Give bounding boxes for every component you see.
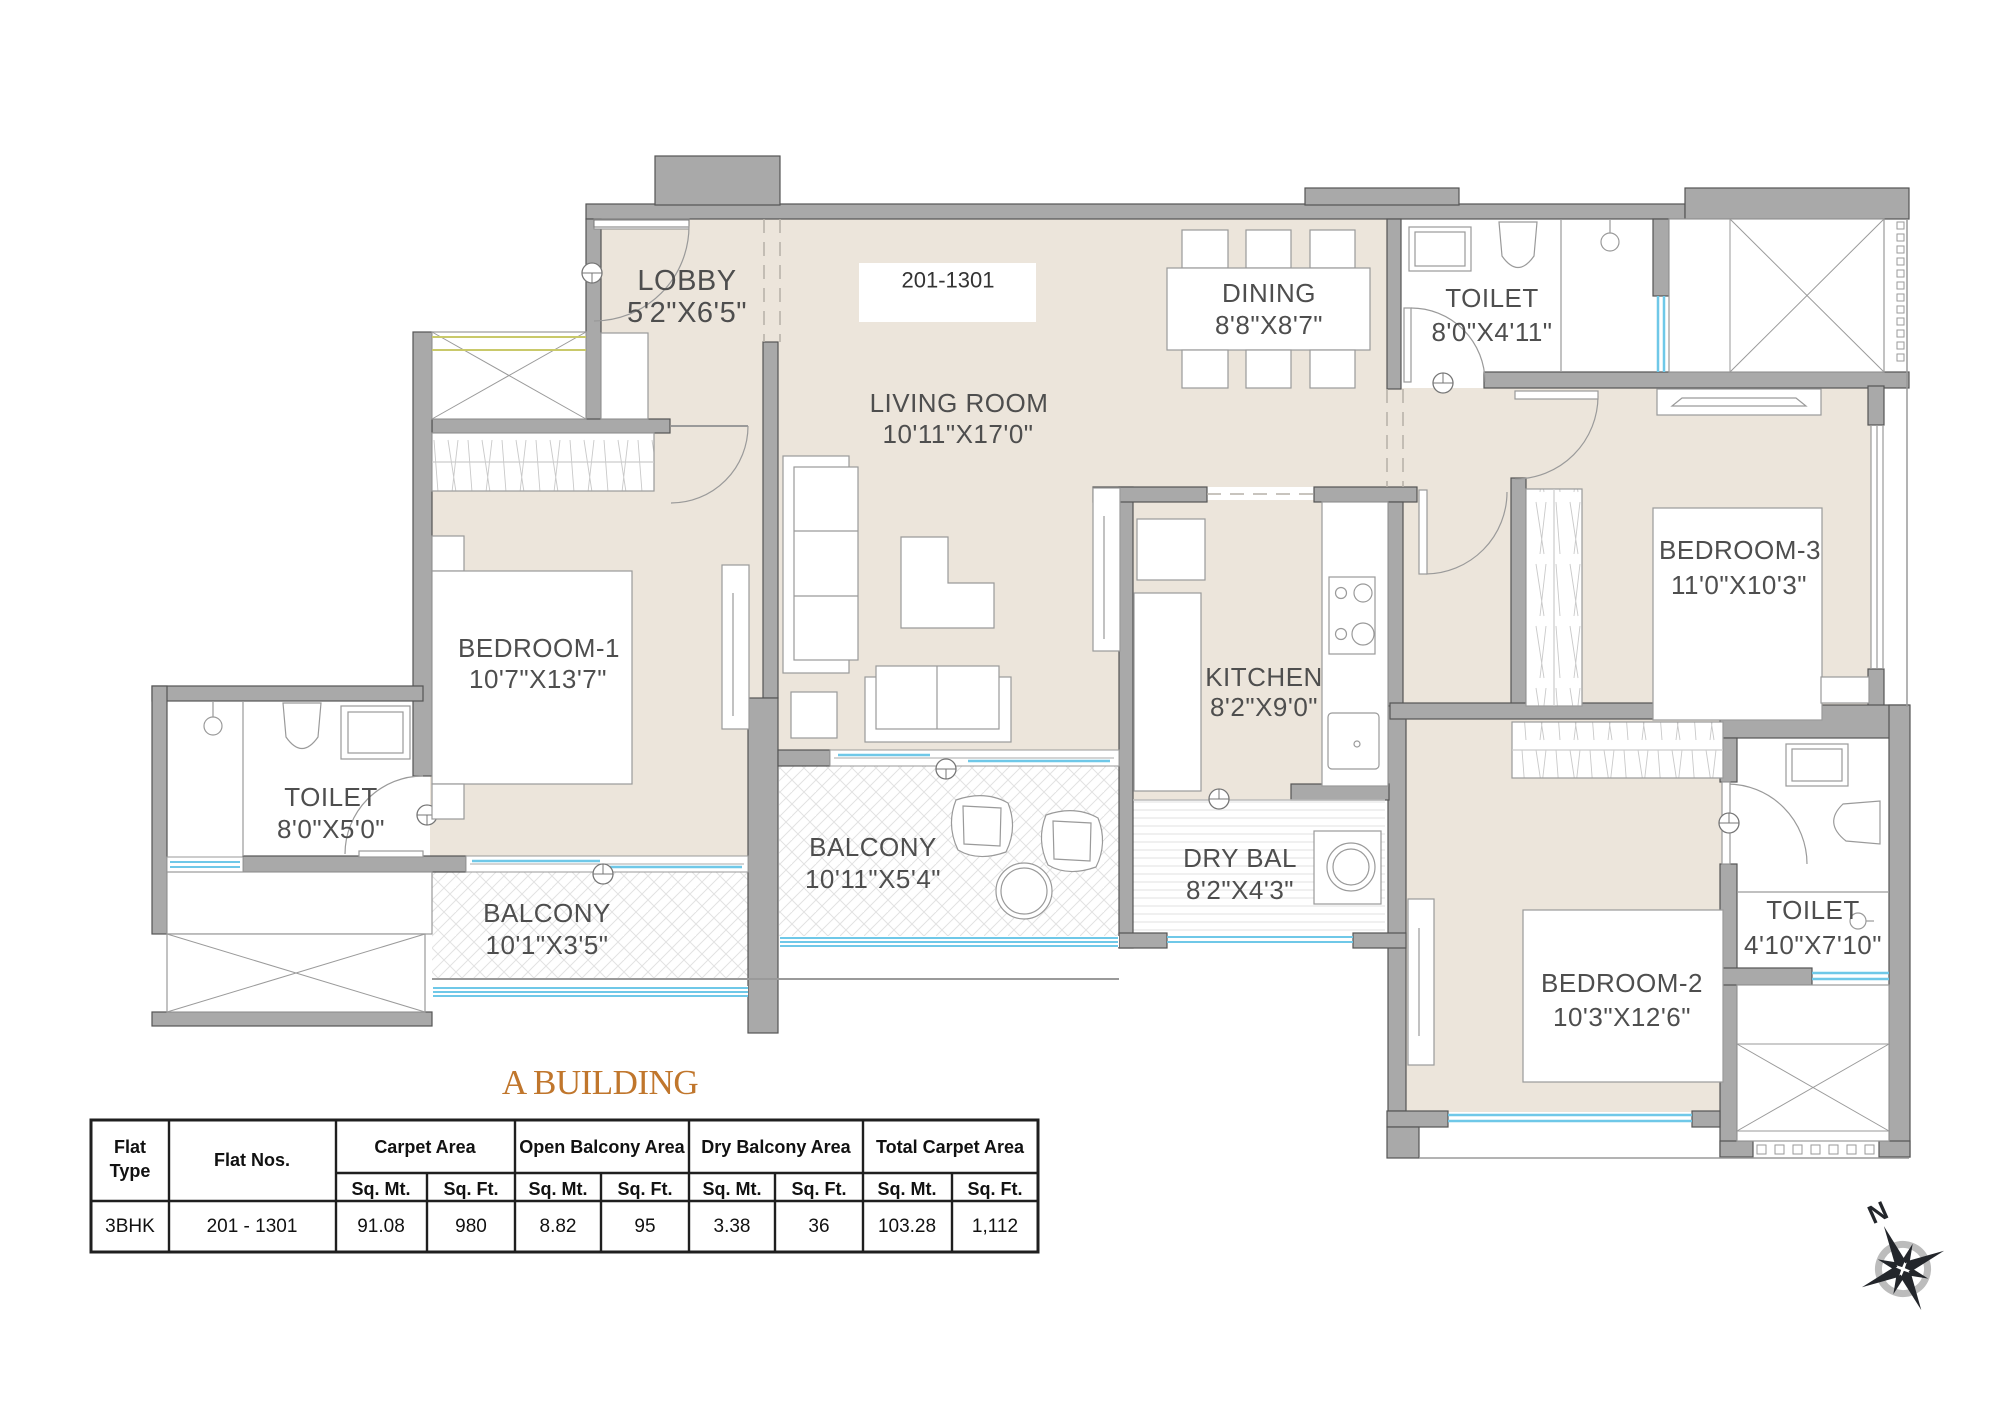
svg-text:BEDROOM-3: BEDROOM-3 bbox=[1659, 535, 1821, 565]
svg-text:TOILET: TOILET bbox=[1445, 283, 1539, 313]
svg-text:Flat: Flat bbox=[114, 1137, 146, 1157]
svg-text:8'0"X5'0": 8'0"X5'0" bbox=[277, 814, 385, 844]
svg-text:Sq. Mt.: Sq. Mt. bbox=[352, 1179, 411, 1199]
svg-text:8.82: 8.82 bbox=[540, 1216, 577, 1237]
svg-text:BALCONY: BALCONY bbox=[483, 898, 611, 928]
svg-text:Sq. Mt.: Sq. Mt. bbox=[878, 1179, 937, 1199]
svg-text:Flat Nos.: Flat Nos. bbox=[214, 1150, 290, 1170]
svg-text:3BHK: 3BHK bbox=[105, 1216, 155, 1237]
svg-text:DRY BAL: DRY BAL bbox=[1183, 843, 1297, 873]
svg-text:Sq. Ft.: Sq. Ft. bbox=[444, 1179, 499, 1199]
svg-text:BEDROOM-2: BEDROOM-2 bbox=[1541, 968, 1703, 998]
svg-text:BEDROOM-1: BEDROOM-1 bbox=[458, 633, 620, 663]
svg-text:KITCHEN: KITCHEN bbox=[1205, 662, 1323, 692]
svg-text:Sq. Mt.: Sq. Mt. bbox=[703, 1179, 762, 1199]
svg-text:8'2"X9'0": 8'2"X9'0" bbox=[1210, 692, 1318, 722]
svg-text:1,112: 1,112 bbox=[972, 1216, 1018, 1237]
svg-text:TOILET: TOILET bbox=[1766, 895, 1860, 925]
svg-text:Dry Balcony Area: Dry Balcony Area bbox=[701, 1137, 851, 1157]
svg-text:BALCONY: BALCONY bbox=[809, 832, 937, 862]
svg-text:A BUILDING: A BUILDING bbox=[502, 1063, 698, 1102]
svg-text:Sq. Ft.: Sq. Ft. bbox=[792, 1179, 847, 1199]
svg-text:10'11"X5'4": 10'11"X5'4" bbox=[805, 864, 941, 894]
svg-text:Open Balcony Area: Open Balcony Area bbox=[519, 1137, 685, 1157]
svg-text:DINING: DINING bbox=[1222, 278, 1316, 308]
svg-text:Sq. Ft.: Sq. Ft. bbox=[618, 1179, 673, 1199]
svg-text:3.38: 3.38 bbox=[714, 1216, 751, 1237]
svg-text:Total Carpet Area: Total Carpet Area bbox=[876, 1137, 1025, 1157]
svg-text:980: 980 bbox=[455, 1216, 487, 1237]
svg-text:10'3"X12'6": 10'3"X12'6" bbox=[1553, 1002, 1691, 1032]
svg-text:103.28: 103.28 bbox=[878, 1216, 936, 1237]
svg-text:201 - 1301: 201 - 1301 bbox=[207, 1216, 298, 1237]
svg-text:5'2"X6'5": 5'2"X6'5" bbox=[627, 297, 747, 329]
svg-text:Sq. Mt.: Sq. Mt. bbox=[529, 1179, 588, 1199]
svg-text:LOBBY: LOBBY bbox=[637, 265, 736, 297]
svg-text:10'11"X17'0": 10'11"X17'0" bbox=[882, 419, 1033, 449]
svg-text:TOILET: TOILET bbox=[284, 782, 378, 812]
svg-text:36: 36 bbox=[808, 1216, 829, 1237]
svg-text:8'0"X4'11": 8'0"X4'11" bbox=[1431, 317, 1552, 347]
svg-text:Sq. Ft.: Sq. Ft. bbox=[968, 1179, 1023, 1199]
svg-text:95: 95 bbox=[634, 1216, 655, 1237]
svg-text:Type: Type bbox=[110, 1161, 151, 1181]
svg-text:10'1"X3'5": 10'1"X3'5" bbox=[485, 930, 608, 960]
svg-text:91.08: 91.08 bbox=[357, 1216, 405, 1237]
svg-text:Carpet Area: Carpet Area bbox=[374, 1137, 476, 1157]
svg-text:11'0"X10'3": 11'0"X10'3" bbox=[1671, 570, 1807, 600]
svg-text:4'10"X7'10": 4'10"X7'10" bbox=[1744, 930, 1882, 960]
svg-text:8'2"X4'3": 8'2"X4'3" bbox=[1186, 875, 1294, 905]
svg-text:201-1301: 201-1301 bbox=[902, 268, 995, 293]
svg-text:LIVING ROOM: LIVING ROOM bbox=[870, 388, 1049, 418]
svg-text:10'7"X13'7": 10'7"X13'7" bbox=[469, 664, 607, 694]
svg-text:8'8"X8'7": 8'8"X8'7" bbox=[1215, 310, 1323, 340]
